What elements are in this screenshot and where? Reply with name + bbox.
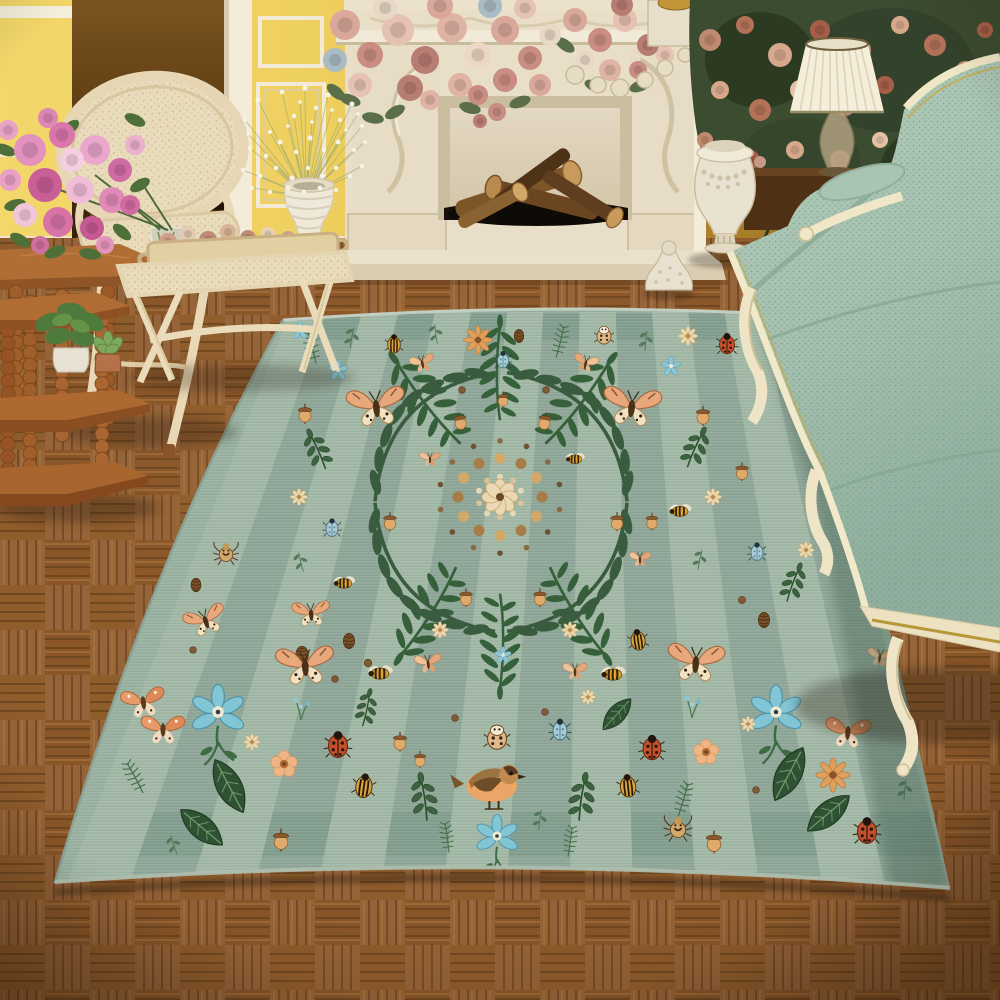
living-room-scene — [0, 0, 1000, 1000]
photo-vignette — [0, 0, 1000, 1000]
photo-stage — [0, 0, 1000, 1000]
